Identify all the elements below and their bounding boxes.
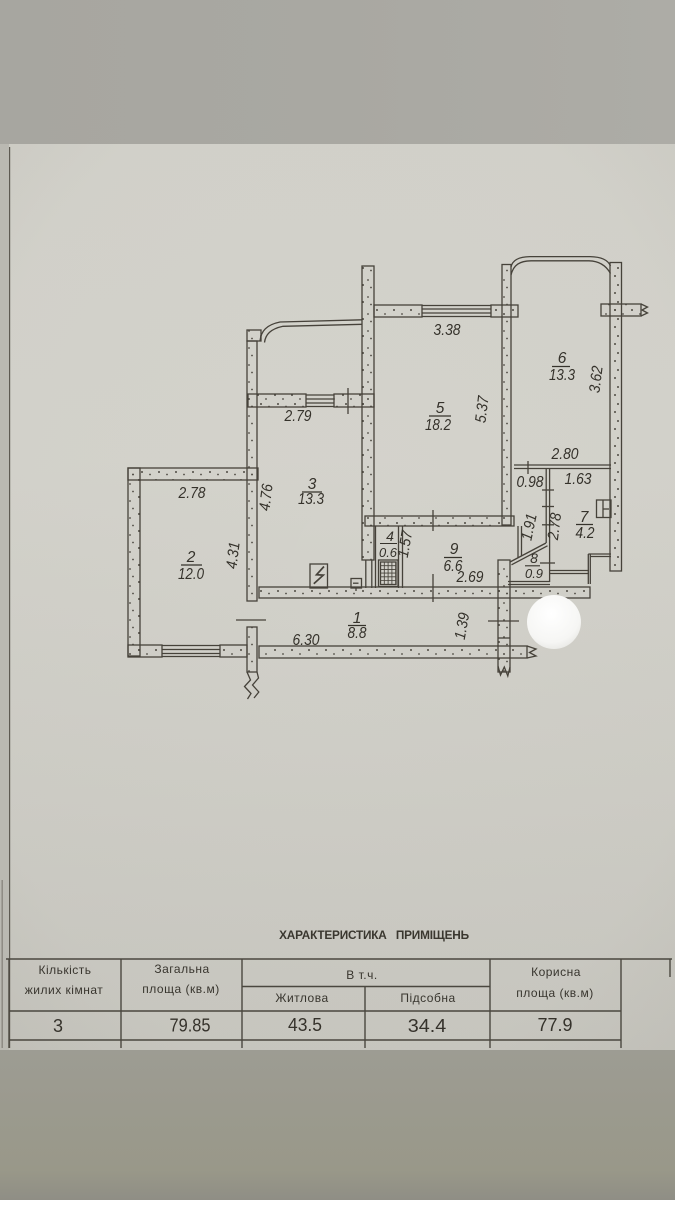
svg-text:1.63: 1.63 — [565, 471, 592, 488]
svg-text:12.0: 12.0 — [178, 566, 204, 583]
svg-text:0.98: 0.98 — [517, 474, 544, 491]
svg-text:13.3: 13.3 — [298, 491, 324, 508]
svg-text:В т.ч.: В т.ч. — [346, 968, 377, 982]
svg-text:2.69: 2.69 — [456, 569, 484, 586]
svg-text:8: 8 — [530, 550, 538, 566]
svg-text:9: 9 — [450, 541, 459, 558]
svg-text:34.4: 34.4 — [408, 1016, 447, 1036]
svg-text:2.78: 2.78 — [178, 485, 206, 502]
svg-text:3: 3 — [53, 1016, 63, 1036]
svg-text:43.5: 43.5 — [288, 1015, 322, 1035]
svg-text:18.2: 18.2 — [425, 417, 451, 434]
svg-text:ХАРАКТЕРИСТИКА ПРИМІЩЕНЬ: ХАРАКТЕРИСТИКА ПРИМІЩЕНЬ — [279, 928, 469, 942]
svg-text:7: 7 — [580, 509, 590, 526]
svg-text:5: 5 — [436, 400, 445, 417]
svg-text:8.8: 8.8 — [348, 625, 367, 642]
svg-text:Житлова: Житлова — [275, 991, 328, 1005]
svg-text:0.9: 0.9 — [525, 567, 543, 581]
svg-text:площа (кв.м): площа (кв.м) — [142, 982, 219, 996]
svg-text:5.37: 5.37 — [472, 394, 492, 424]
svg-text:2: 2 — [186, 549, 196, 566]
svg-text:13.3: 13.3 — [549, 367, 575, 384]
svg-text:Підсобна: Підсобна — [400, 991, 455, 1005]
svg-text:3.38: 3.38 — [434, 322, 461, 339]
svg-text:2.80: 2.80 — [551, 446, 579, 463]
svg-text:4.76: 4.76 — [256, 483, 276, 512]
svg-text:Кількість: Кількість — [38, 963, 91, 977]
svg-text:4.31: 4.31 — [223, 541, 243, 570]
svg-text:0.6: 0.6 — [379, 546, 397, 560]
svg-text:площа (кв.м): площа (кв.м) — [516, 986, 593, 1000]
svg-text:6.30: 6.30 — [293, 632, 320, 649]
svg-text:77.9: 77.9 — [538, 1015, 573, 1035]
svg-text:4: 4 — [386, 528, 394, 544]
svg-text:Загальна: Загальна — [154, 962, 209, 976]
svg-text:6: 6 — [558, 350, 567, 367]
svg-text:жилих кімнат: жилих кімнат — [25, 983, 103, 997]
svg-text:2.78: 2.78 — [545, 512, 565, 542]
svg-text:3.62: 3.62 — [586, 365, 606, 394]
svg-text:79.85: 79.85 — [170, 1016, 211, 1036]
svg-text:4.2: 4.2 — [576, 525, 595, 542]
svg-text:Корисна: Корисна — [531, 965, 581, 979]
svg-text:2.79: 2.79 — [284, 408, 312, 425]
